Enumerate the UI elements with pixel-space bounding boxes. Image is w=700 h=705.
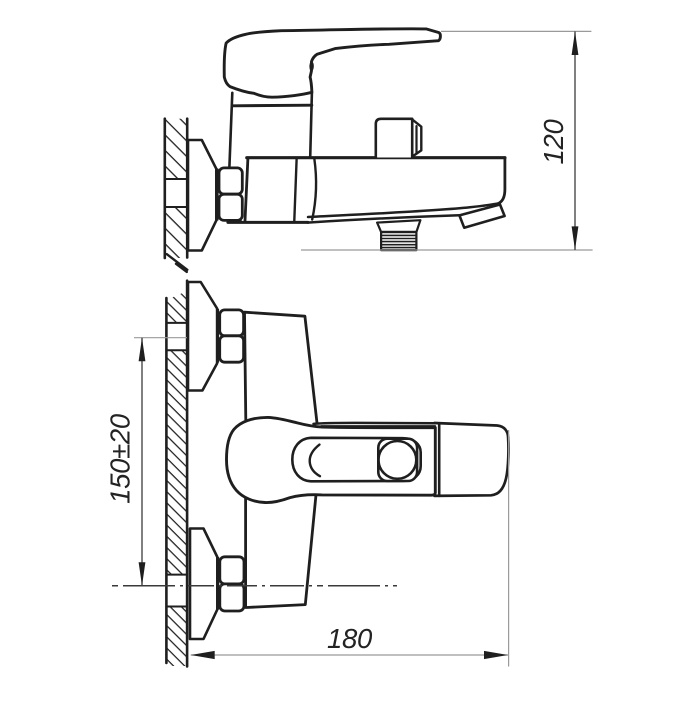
- svg-text:180: 180: [327, 623, 373, 654]
- svg-text:120: 120: [538, 119, 569, 165]
- svg-text:150±20: 150±20: [104, 413, 135, 504]
